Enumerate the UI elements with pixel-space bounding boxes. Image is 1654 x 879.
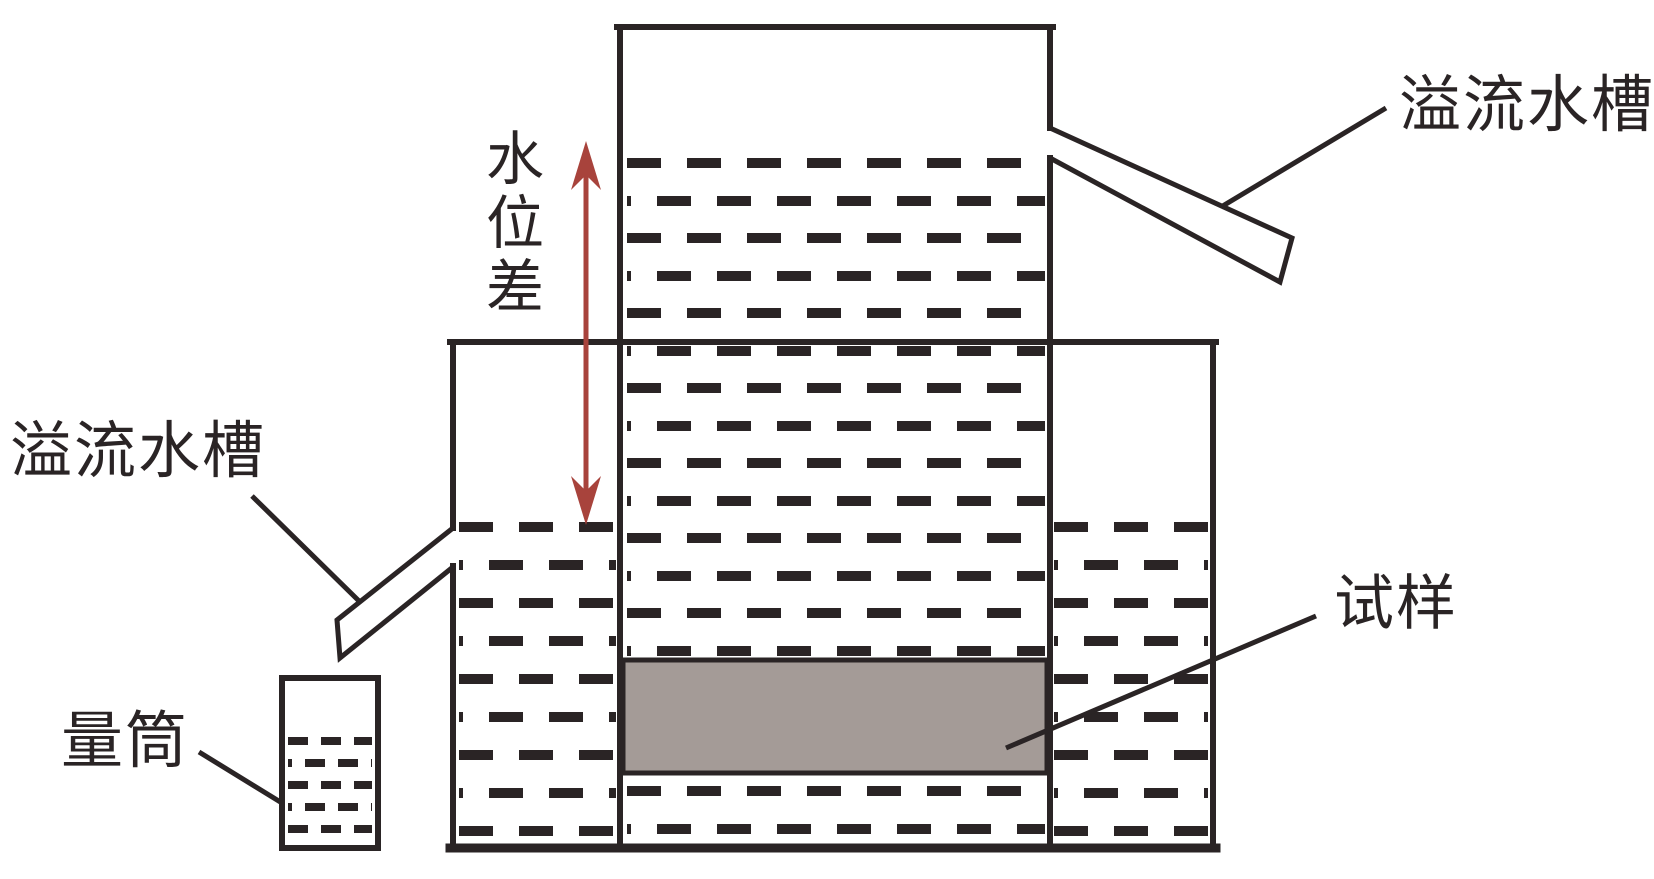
leader-overflow-tank-left xyxy=(252,496,359,601)
label-measuring-cylinder: 量筒 xyxy=(61,710,189,776)
overflow-spout-right xyxy=(1050,128,1292,282)
label-overflow-tank-left: 溢流水槽 xyxy=(10,420,266,486)
specimen-block xyxy=(623,660,1047,773)
label-specimen: 试样 xyxy=(1334,573,1458,637)
label-overflow-tank-top: 溢流水槽 xyxy=(1399,74,1654,140)
leader-overflow-tank-top xyxy=(1221,108,1386,207)
water-level-difference-arrow xyxy=(571,141,601,525)
label-water-level-difference: 水位差 xyxy=(480,128,538,320)
apparatus-diagram: 溢流水槽 水位差 溢流水槽 量筒 试样 xyxy=(0,0,1654,879)
leader-measuring-cylinder xyxy=(199,752,282,803)
measuring-cylinder-body xyxy=(282,678,378,848)
